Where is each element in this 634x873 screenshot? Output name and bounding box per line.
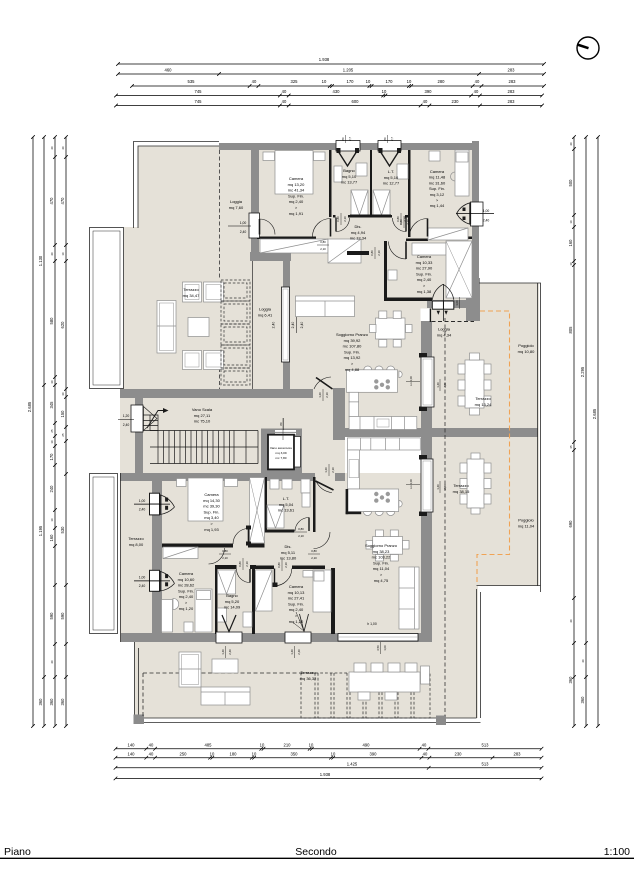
- svg-text:10: 10: [260, 742, 265, 747]
- svg-text:Terrazzomq 13,24: Terrazzomq 13,24: [475, 396, 492, 407]
- svg-text:40: 40: [581, 659, 585, 663]
- svg-text:2,10: 2,10: [298, 534, 304, 538]
- svg-text:2,10: 2,10: [325, 392, 329, 398]
- svg-text:490: 490: [363, 742, 371, 747]
- svg-text:40: 40: [423, 751, 428, 756]
- svg-text:Poggiolomq 10,80: Poggiolomq 10,80: [518, 343, 535, 354]
- svg-text:170: 170: [386, 79, 394, 84]
- svg-text:1.938: 1.938: [320, 772, 331, 777]
- svg-text:40: 40: [422, 742, 427, 747]
- svg-text:40: 40: [475, 79, 480, 84]
- svg-text:2,40: 2,40: [228, 649, 232, 655]
- svg-text:390: 390: [425, 89, 433, 94]
- svg-text:2,10: 2,10: [377, 250, 381, 256]
- svg-text:40: 40: [50, 146, 54, 150]
- svg-text:Secondo: Secondo: [295, 846, 337, 858]
- svg-text:40: 40: [252, 79, 257, 84]
- svg-text:1,40: 1,40: [221, 649, 225, 655]
- svg-text:360: 360: [60, 698, 65, 706]
- svg-text:10: 10: [322, 79, 327, 84]
- svg-text:1,00: 1,00: [139, 499, 146, 503]
- svg-text:360: 360: [38, 698, 43, 706]
- svg-text:360: 360: [49, 698, 54, 706]
- svg-text:Terrazzomq 34,47: Terrazzomq 34,47: [183, 287, 200, 298]
- svg-text:600: 600: [352, 99, 360, 104]
- svg-text:1.195: 1.195: [38, 525, 43, 536]
- svg-text:10: 10: [569, 220, 573, 224]
- svg-text:Loggiamq 4,34: Loggiamq 4,34: [437, 327, 452, 338]
- svg-text:0,80: 0,80: [336, 216, 340, 222]
- svg-text:0,80: 0,80: [298, 527, 304, 531]
- svg-text:1,20: 1,20: [324, 467, 328, 473]
- svg-text:745: 745: [195, 99, 203, 104]
- svg-text:Cameramq 10,13mc 27,41Sup. Fin: Cameramq 10,13mc 27,41Sup. Fin.mq 2,40>m…: [288, 584, 305, 624]
- svg-text:805: 805: [568, 326, 573, 334]
- svg-text:10: 10: [366, 79, 371, 84]
- svg-text:Cameramq 10,60mc 28,62Sup. Fin: Cameramq 10,60mc 28,62Sup. Fin.mq 2,40>m…: [178, 571, 195, 611]
- svg-text:10: 10: [331, 751, 336, 756]
- svg-text:0,80: 0,80: [320, 240, 326, 244]
- svg-text:s.s 1,00: s.s 1,00: [409, 376, 413, 386]
- svg-text:2,40: 2,40: [483, 219, 490, 223]
- svg-text:140: 140: [128, 751, 136, 756]
- svg-text:470: 470: [60, 197, 65, 205]
- svg-text:590: 590: [49, 612, 54, 620]
- svg-text:Terrazzomq 38,15: Terrazzomq 38,15: [453, 483, 470, 494]
- svg-text:460: 460: [165, 68, 173, 73]
- svg-text:0,80: 0,80: [399, 219, 403, 225]
- svg-text:Cameramq 14,30mc 39,30Sup. Fin: Cameramq 14,30mc 39,30Sup. Fin.mq 3,40>m…: [203, 492, 220, 532]
- svg-text:230: 230: [452, 99, 460, 104]
- svg-text:40: 40: [423, 99, 428, 104]
- svg-text:1,40: 1,40: [436, 484, 440, 490]
- svg-text:30: 30: [50, 380, 54, 384]
- svg-text:230: 230: [455, 751, 463, 756]
- svg-text:2,40: 2,40: [300, 322, 304, 329]
- svg-text:3,50: 3,50: [376, 645, 380, 651]
- svg-text:390: 390: [370, 751, 378, 756]
- svg-text:2,40: 2,40: [240, 230, 247, 234]
- svg-text:2,10: 2,10: [320, 247, 326, 251]
- svg-text:80: 80: [279, 422, 283, 426]
- svg-text:283: 283: [508, 68, 516, 73]
- svg-text:360: 360: [568, 676, 573, 684]
- svg-text:2.295: 2.295: [580, 366, 585, 377]
- svg-text:1,00: 1,00: [455, 300, 459, 306]
- svg-text:350: 350: [291, 751, 299, 756]
- svg-text:170: 170: [347, 79, 355, 84]
- svg-text:2,10: 2,10: [343, 216, 347, 222]
- svg-text:10: 10: [569, 262, 573, 266]
- svg-text:10: 10: [309, 742, 314, 747]
- svg-text:10: 10: [61, 252, 65, 256]
- svg-text:40: 40: [569, 142, 573, 146]
- svg-text:470: 470: [49, 197, 54, 205]
- svg-text:530: 530: [60, 526, 65, 534]
- svg-text:2,10: 2,10: [222, 556, 228, 560]
- svg-text:325: 325: [291, 79, 299, 84]
- svg-text:2,10: 2,10: [284, 562, 288, 568]
- svg-text:30: 30: [61, 392, 65, 396]
- svg-text:745: 745: [195, 89, 203, 94]
- svg-text:10: 10: [210, 751, 215, 756]
- svg-text:1.130: 1.130: [38, 255, 43, 266]
- svg-text:1,40: 1,40: [290, 649, 294, 655]
- svg-text:1,20: 1,20: [123, 414, 130, 418]
- svg-text:40: 40: [61, 146, 65, 150]
- svg-text:80: 80: [383, 137, 387, 141]
- svg-text:0,80: 0,80: [238, 561, 242, 567]
- svg-text:40: 40: [50, 252, 54, 256]
- svg-text:1.205: 1.205: [343, 68, 354, 73]
- svg-text:160: 160: [49, 534, 54, 542]
- svg-text:40: 40: [282, 89, 287, 94]
- svg-text:160: 160: [568, 239, 573, 247]
- svg-text:513: 513: [482, 761, 490, 766]
- svg-text:590: 590: [60, 612, 65, 620]
- svg-text:Cameramq 11,48mc 31,60Sup. Fin: Cameramq 11,48mc 31,60Sup. Fin.mq 3,12>m…: [429, 169, 446, 208]
- svg-text:2,40: 2,40: [443, 484, 447, 490]
- svg-text:10: 10: [50, 518, 54, 522]
- svg-text:690: 690: [568, 520, 573, 528]
- svg-text:2,10: 2,10: [311, 556, 317, 560]
- svg-text:150: 150: [60, 410, 65, 418]
- svg-text:485: 485: [205, 742, 213, 747]
- svg-text:10: 10: [382, 89, 387, 94]
- svg-text:Piano: Piano: [4, 846, 31, 858]
- svg-text:0,80: 0,80: [370, 250, 374, 256]
- svg-text:Terrazzomq 8,00: Terrazzomq 8,00: [128, 536, 144, 547]
- svg-text:250: 250: [180, 751, 188, 756]
- svg-text:40: 40: [282, 99, 287, 104]
- svg-text:Loggiamq 6,41: Loggiamq 6,41: [258, 307, 273, 318]
- svg-text:2,7: 2,7: [348, 137, 352, 141]
- svg-text:Cameramq 13,20mc 41,34Sup. Fin: Cameramq 13,20mc 41,34Sup. Fin.mq 2,40>m…: [288, 176, 305, 216]
- svg-text:1:100: 1:100: [604, 846, 630, 858]
- svg-text:Cameramq 10,33mc 27,90Sup. Fin: Cameramq 10,33mc 27,90Sup. Fin.mq 2,40>m…: [416, 254, 433, 294]
- svg-text:2,40: 2,40: [291, 322, 295, 329]
- svg-text:2,40: 2,40: [297, 649, 301, 655]
- svg-text:580: 580: [49, 317, 54, 325]
- svg-text:35: 35: [569, 445, 573, 449]
- svg-text:1,00: 1,00: [483, 209, 490, 213]
- svg-text:1,40: 1,40: [436, 382, 440, 388]
- svg-text:2,40: 2,40: [443, 382, 447, 388]
- svg-text:240: 240: [49, 485, 54, 493]
- svg-text:2.685: 2.685: [27, 401, 32, 412]
- svg-text:40: 40: [569, 619, 573, 623]
- svg-text:283: 283: [509, 79, 517, 84]
- svg-text:2,40: 2,40: [139, 508, 146, 512]
- svg-text:0,80: 0,80: [222, 549, 228, 553]
- svg-text:40: 40: [149, 742, 154, 747]
- svg-text:280: 280: [438, 79, 446, 84]
- svg-text:s.s 1,00: s.s 1,00: [409, 479, 413, 489]
- svg-text:1,00: 1,00: [139, 576, 146, 580]
- svg-text:1.425: 1.425: [347, 761, 358, 766]
- svg-text:1,00: 1,00: [240, 221, 247, 225]
- svg-text:40: 40: [50, 660, 54, 664]
- svg-text:360: 360: [580, 696, 585, 704]
- svg-text:2,40: 2,40: [272, 322, 276, 329]
- svg-text:Vano Scalamq 27,11mc 75,10: Vano Scalamq 27,11mc 75,10: [192, 407, 213, 424]
- svg-text:283: 283: [508, 89, 516, 94]
- svg-text:10: 10: [407, 79, 412, 84]
- svg-text:Loggiamq 7,60: Loggiamq 7,60: [229, 199, 244, 210]
- svg-text:25: 25: [50, 429, 54, 433]
- svg-text:Poggiolomq 11,04: Poggiolomq 11,04: [518, 518, 535, 529]
- svg-text:0,80: 0,80: [311, 549, 317, 553]
- svg-text:500: 500: [568, 179, 573, 187]
- svg-text:10: 10: [50, 440, 54, 444]
- svg-text:170: 170: [49, 453, 54, 461]
- svg-text:2,40: 2,40: [123, 423, 130, 427]
- svg-text:40: 40: [149, 751, 154, 756]
- svg-text:2,40: 2,40: [139, 584, 146, 588]
- svg-text:1.938: 1.938: [319, 57, 330, 62]
- svg-text:2,10: 2,10: [331, 467, 335, 473]
- svg-text:535: 535: [188, 79, 196, 84]
- svg-text:210: 210: [284, 742, 292, 747]
- svg-text:1,00: 1,00: [383, 645, 387, 651]
- svg-text:25: 25: [61, 433, 65, 437]
- svg-text:1,20: 1,20: [318, 392, 322, 398]
- svg-text:80: 80: [341, 137, 345, 141]
- svg-text:283: 283: [514, 751, 522, 756]
- svg-text:2.685: 2.685: [592, 408, 597, 419]
- svg-text:40: 40: [474, 89, 479, 94]
- svg-text:2,10: 2,10: [245, 561, 249, 567]
- svg-text:620: 620: [60, 321, 65, 329]
- svg-text:513: 513: [482, 742, 490, 747]
- svg-text:345: 345: [49, 401, 54, 409]
- svg-text:180: 180: [230, 751, 238, 756]
- svg-text:0,80: 0,80: [277, 562, 281, 568]
- svg-text:2,7: 2,7: [390, 137, 394, 141]
- svg-text:Terrazzomq 36,32: Terrazzomq 36,32: [300, 670, 317, 681]
- svg-text:2,10: 2,10: [406, 219, 410, 225]
- svg-text:430: 430: [333, 89, 341, 94]
- svg-text:140: 140: [128, 742, 136, 747]
- svg-text:h 1,00: h 1,00: [367, 622, 377, 626]
- svg-text:10: 10: [252, 751, 257, 756]
- svg-text:283: 283: [508, 99, 516, 104]
